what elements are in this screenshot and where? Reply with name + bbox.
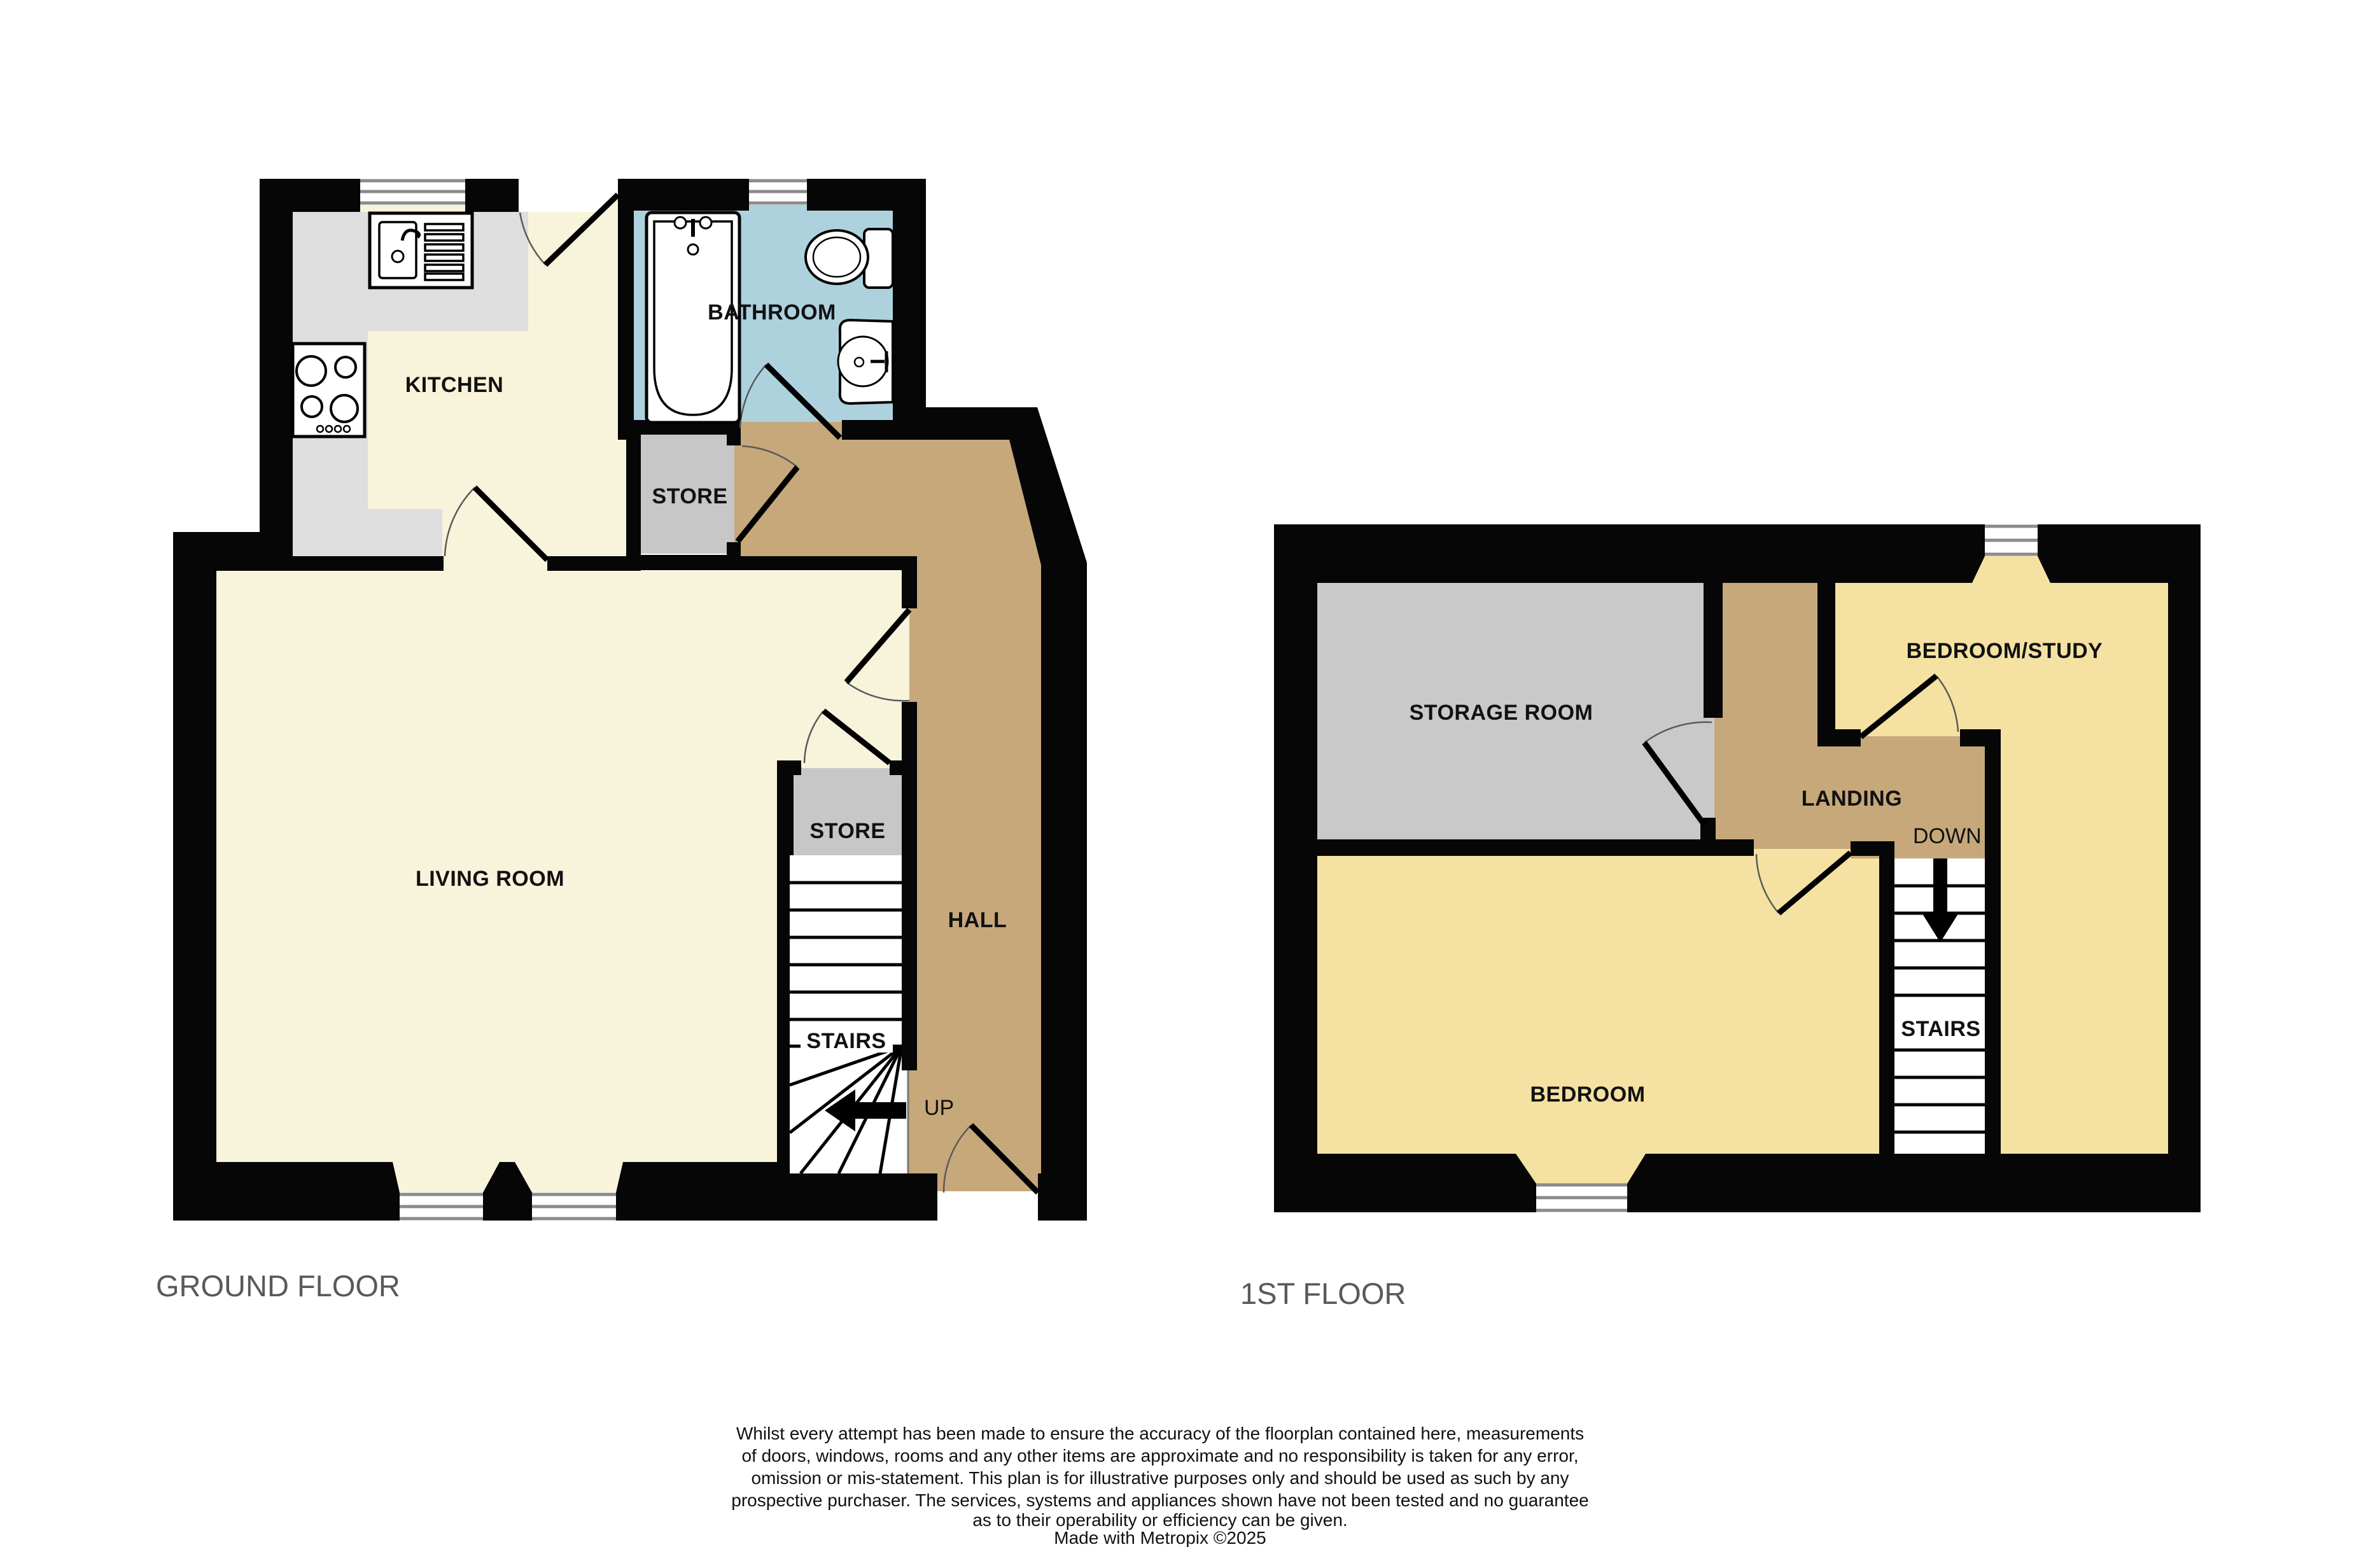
svg-text:KITCHEN: KITCHEN	[405, 373, 504, 397]
svg-text:GROUND FLOOR: GROUND FLOOR	[156, 1269, 400, 1303]
svg-text:Whilst every attempt has been: Whilst every attempt has been made to en…	[736, 1424, 1584, 1443]
svg-text:STAIRS: STAIRS	[1901, 1017, 1980, 1041]
svg-text:omission or mis-statement. Thi: omission or mis-statement. This plan is …	[751, 1468, 1569, 1488]
svg-text:DOWN: DOWN	[1913, 824, 1982, 848]
svg-text:Made with Metropix ©2025: Made with Metropix ©2025	[1054, 1528, 1266, 1547]
svg-text:STORE: STORE	[652, 484, 727, 508]
svg-text:prospective purchaser. The ser: prospective purchaser. The services, sys…	[731, 1490, 1588, 1510]
svg-text:HALL: HALL	[948, 908, 1007, 932]
svg-text:STORE: STORE	[809, 819, 885, 843]
svg-text:LANDING: LANDING	[1802, 787, 1902, 811]
svg-text:STORAGE ROOM: STORAGE ROOM	[1410, 701, 1593, 725]
svg-text:BEDROOM/STUDY: BEDROOM/STUDY	[1907, 639, 2103, 663]
svg-text:as to their operability or eff: as to their operability or efficiency ca…	[972, 1510, 1347, 1530]
svg-text:STAIRS: STAIRS	[806, 1029, 886, 1053]
svg-text:1ST FLOOR: 1ST FLOOR	[1240, 1277, 1406, 1310]
svg-text:of doors, windows, rooms and a: of doors, windows, rooms and any other i…	[741, 1446, 1578, 1466]
svg-text:UP: UP	[924, 1096, 954, 1120]
svg-text:BEDROOM: BEDROOM	[1530, 1082, 1645, 1107]
svg-text:LIVING ROOM: LIVING ROOM	[416, 867, 564, 891]
svg-text:BATHROOM: BATHROOM	[708, 300, 836, 325]
